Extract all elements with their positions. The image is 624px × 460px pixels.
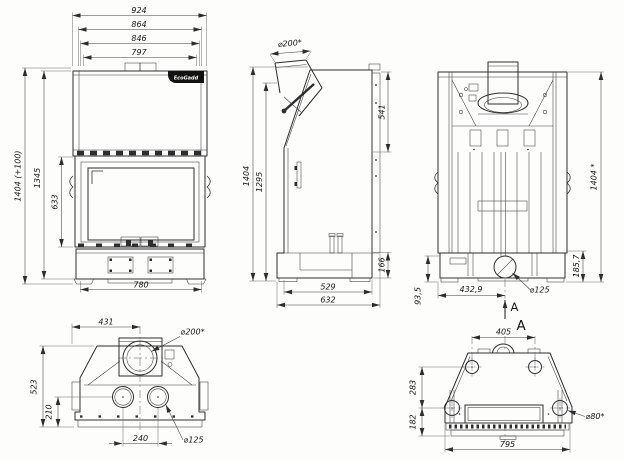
front-view: EcoGadd	[14, 6, 211, 293]
dim-bottom-405: 405	[496, 328, 511, 337]
dim-rear-93-5: 93,5	[414, 287, 423, 305]
mid-fasteners	[442, 398, 570, 418]
bottom-body	[442, 336, 572, 442]
dim-front-780: 780	[133, 281, 148, 290]
dim-front-924: 924	[131, 6, 146, 15]
right-side-tab	[200, 382, 208, 410]
dim-bottom-283: 283	[409, 380, 418, 395]
dim-rear-d125: ⌀125	[530, 286, 550, 295]
front-door-frame	[75, 156, 205, 247]
front-body: EcoGadd	[70, 63, 211, 284]
dim-top-523: 523	[30, 379, 39, 394]
side-foot	[350, 278, 370, 282]
front-top-tab	[140, 63, 156, 71]
bottom-dimensions: A 405 283 182 795 ⌀80*	[409, 318, 605, 453]
side-back-panel	[372, 73, 380, 253]
dim-bottom-795: 795	[500, 440, 515, 449]
front-plinth	[76, 249, 204, 279]
rear-ribs	[458, 152, 541, 256]
front-foot	[187, 279, 207, 284]
dim-side-632: 632	[320, 296, 335, 305]
dim-top-431: 431	[98, 318, 113, 327]
upper-fasteners	[463, 358, 545, 377]
right-mount-clip	[207, 176, 210, 198]
dim-front-1345: 1345	[33, 168, 42, 188]
dim-side-529: 529	[320, 283, 335, 292]
front-hood	[73, 71, 207, 156]
rear-foot	[547, 278, 564, 282]
side-foot	[279, 278, 297, 282]
rear-body	[435, 62, 571, 282]
front-foot	[74, 279, 94, 284]
rear-opening	[470, 130, 481, 146]
dim-top-240: 240	[133, 434, 148, 443]
side-flue-outlet	[275, 60, 322, 116]
left-mount-clip	[70, 176, 73, 198]
left-side-tab	[72, 382, 80, 410]
brand-logo-text: EcoGadd	[174, 76, 199, 82]
dim-front-height-total: 1404 (+100)	[14, 150, 23, 201]
dim-front-797: 797	[131, 48, 147, 57]
dim-bottom-182: 182	[409, 414, 418, 429]
rear-flue-collar	[478, 93, 528, 113]
glass-corner-mark	[92, 171, 103, 184]
dim-rear-432-9: 432,9	[460, 285, 483, 294]
section-title-a: A	[517, 318, 527, 334]
dim-bottom-d80: ⌀80*	[586, 412, 605, 421]
top-flue-block	[119, 338, 162, 376]
technical-drawing-sheet: EcoGadd	[0, 0, 624, 460]
front-dimensions: 924 864 846 797 1404 (+100) 1345 633 780	[14, 6, 207, 293]
vent-corner-marks	[110, 259, 172, 273]
top-view: 431 ⌀200* 523 210 240 ⌀125	[30, 318, 209, 447]
dim-top-flue: ⌀200*	[181, 328, 205, 337]
flue-dome-arc	[493, 344, 515, 353]
dim-front-864: 864	[131, 20, 146, 29]
dim-side-flue: ⌀200*	[277, 38, 302, 49]
dim-side-541: 541	[378, 104, 387, 119]
dim-rear-1404: 1404 *	[590, 164, 599, 191]
dim-side-1295: 1295	[255, 172, 264, 192]
front-door-glass	[88, 168, 194, 240]
dim-side-1404: 1404	[242, 166, 251, 186]
rear-foot	[441, 278, 458, 282]
dim-front-633: 633	[51, 194, 60, 209]
rear-opening	[524, 130, 535, 146]
dim-top-d125: ⌀125	[184, 436, 204, 445]
rear-opening	[497, 130, 508, 146]
side-view: ⌀200* 541 166 1404 1295 529 632	[242, 38, 392, 308]
front-top-tab	[125, 63, 140, 71]
dim-front-846: 846	[131, 34, 146, 43]
bottom-view: A 405 283 182 795 ⌀80*	[409, 318, 605, 453]
rear-view: 1404 * 185,7 93,5 432,9 ⌀125 A	[414, 62, 605, 319]
damper-knob	[282, 109, 287, 114]
drawing-svg: EcoGadd	[0, 0, 624, 460]
top-body	[72, 326, 208, 431]
damper-handle	[284, 84, 314, 111]
side-body	[275, 60, 380, 282]
dim-top-210: 210	[45, 404, 54, 419]
water-connections	[329, 234, 343, 254]
rear-plate	[478, 201, 527, 211]
door-handle-side	[297, 162, 301, 188]
side-rails	[450, 390, 562, 423]
dim-side-166: 166	[378, 257, 387, 272]
section-label-a: A	[511, 300, 519, 314]
dim-rear-185-7: 185,7	[572, 254, 581, 278]
